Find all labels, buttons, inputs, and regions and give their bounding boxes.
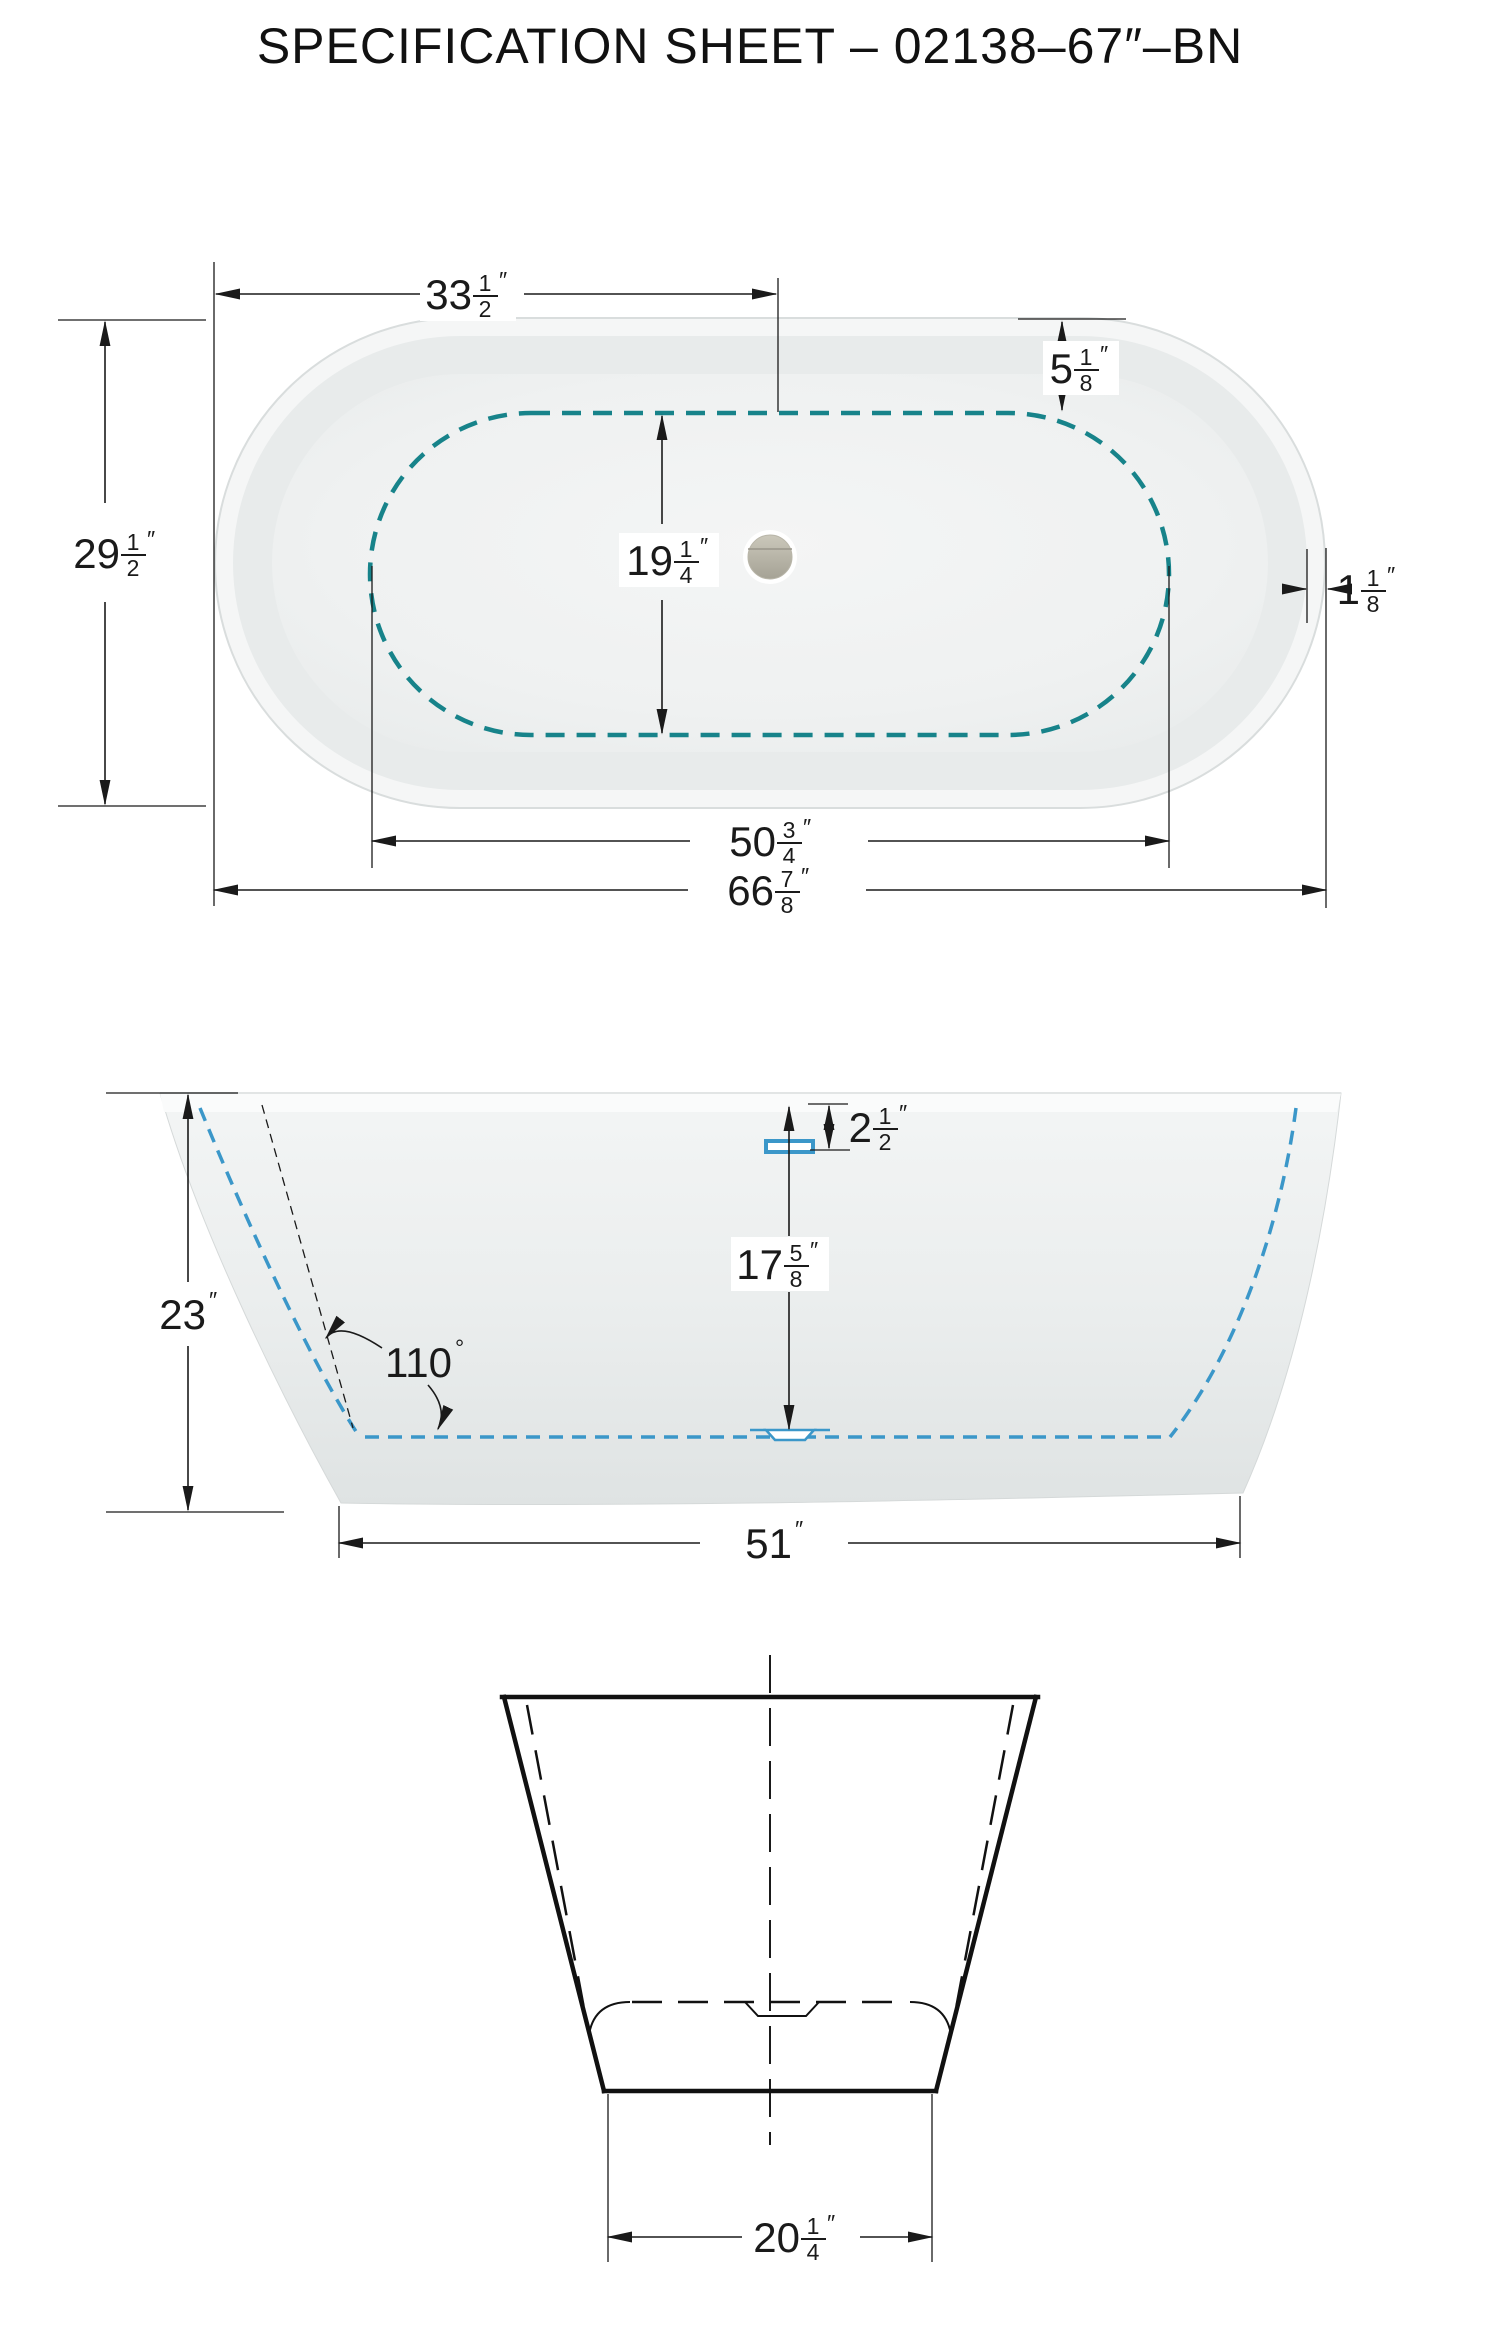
- svg-text:″: ″: [803, 814, 811, 840]
- dim-label-half-width: 33 1 2 ″: [420, 267, 516, 322]
- dim-label-deck-end: 5 1 8 ″: [1043, 341, 1119, 396]
- dim-label-basin-width: 19 1 4 ″: [619, 533, 719, 588]
- dim-label-basin-length: 50 3 4 ″: [724, 814, 822, 869]
- svg-text:23: 23: [159, 1291, 206, 1338]
- tub-side-image: [160, 1093, 1341, 1505]
- svg-text:1: 1: [127, 529, 140, 555]
- spec-sheet-page: SPECIFICATION SHEET – 02138–67″–BN: [0, 0, 1500, 2349]
- dim-base-width: 20 1 4 ″: [608, 2094, 932, 2265]
- svg-text:2: 2: [849, 1104, 872, 1151]
- dim-overall-length: 66 7 8 ″: [214, 863, 1326, 918]
- svg-text:3: 3: [783, 817, 796, 843]
- svg-text:″: ″: [1100, 341, 1108, 367]
- top-view: 33 1 2 ″ 29 1 2 ″: [58, 262, 1395, 918]
- svg-text:19: 19: [626, 537, 673, 584]
- svg-text:33: 33: [425, 271, 472, 318]
- side-view: 2 1 2 ″ 17 5 8 ″: [106, 1093, 1341, 1569]
- svg-text:″: ″: [147, 526, 155, 552]
- dim-label-overall-width: 29 1 2 ″: [66, 526, 166, 581]
- svg-text:8: 8: [1080, 370, 1093, 396]
- svg-text:″: ″: [499, 267, 507, 293]
- svg-text:66: 66: [727, 867, 774, 914]
- svg-text:17: 17: [736, 1241, 783, 1288]
- svg-text:″: ″: [827, 2210, 835, 2236]
- dim-label-overall-length: 66 7 8 ″: [722, 863, 820, 918]
- drain-icon: [743, 530, 797, 584]
- dim-half-width: 33 1 2 ″: [216, 267, 776, 322]
- svg-text:5: 5: [1050, 345, 1073, 392]
- svg-text:20: 20: [753, 2214, 800, 2261]
- svg-text:″: ″: [810, 1237, 818, 1263]
- dim-label-height: 23 ″: [156, 1287, 230, 1340]
- svg-text:1: 1: [807, 2213, 820, 2239]
- dim-label-rim-lip: 1 1 8 ″: [1337, 562, 1396, 617]
- svg-text:2: 2: [127, 555, 140, 581]
- svg-text:″: ″: [801, 863, 809, 889]
- spec-sheet-drawing: SPECIFICATION SHEET – 02138–67″–BN: [0, 0, 1500, 2349]
- dim-label-base-length: 51 ″: [742, 1516, 818, 1569]
- svg-text:″: ″: [1387, 562, 1395, 588]
- dim-label-overflow-depth: 17 5 8 ″: [731, 1237, 829, 1292]
- page-title: SPECIFICATION SHEET – 02138–67″–BN: [257, 18, 1243, 74]
- dim-overall-width: 29 1 2 ″: [66, 322, 166, 804]
- dim-label-base-width: 20 1 4 ″: [748, 2210, 846, 2265]
- section-drain-recess: [745, 2002, 819, 2016]
- svg-text:2: 2: [879, 1129, 892, 1155]
- svg-text:110: 110: [385, 1339, 452, 1386]
- svg-text:4: 4: [807, 2239, 820, 2265]
- svg-text:1: 1: [680, 536, 693, 562]
- dim-basin-length: 50 3 4 ″: [372, 814, 1169, 869]
- tub-top-image: [215, 318, 1325, 808]
- svg-text:8: 8: [781, 892, 794, 918]
- svg-text:″: ″: [700, 533, 708, 559]
- svg-text:29: 29: [73, 530, 120, 577]
- svg-text:1: 1: [1367, 565, 1380, 591]
- svg-text:4: 4: [680, 562, 693, 588]
- svg-text:50: 50: [729, 818, 776, 865]
- svg-text:″: ″: [209, 1287, 217, 1313]
- svg-text:″: ″: [795, 1516, 803, 1542]
- svg-text:5: 5: [790, 1240, 803, 1266]
- svg-text:1: 1: [1080, 344, 1093, 370]
- svg-text:1: 1: [879, 1103, 892, 1129]
- dim-base-length: 51 ″: [339, 1496, 1240, 1569]
- svg-text:1: 1: [1337, 566, 1360, 613]
- end-view: 20 1 4 ″: [502, 1655, 1038, 2265]
- svg-text:7: 7: [781, 866, 794, 892]
- svg-text:51: 51: [745, 1520, 792, 1567]
- svg-text:1: 1: [479, 270, 492, 296]
- svg-text:8: 8: [1367, 591, 1380, 617]
- svg-text:2: 2: [479, 296, 492, 322]
- svg-text:″: ″: [899, 1100, 907, 1126]
- svg-text:°: °: [455, 1335, 464, 1361]
- svg-text:8: 8: [790, 1266, 803, 1292]
